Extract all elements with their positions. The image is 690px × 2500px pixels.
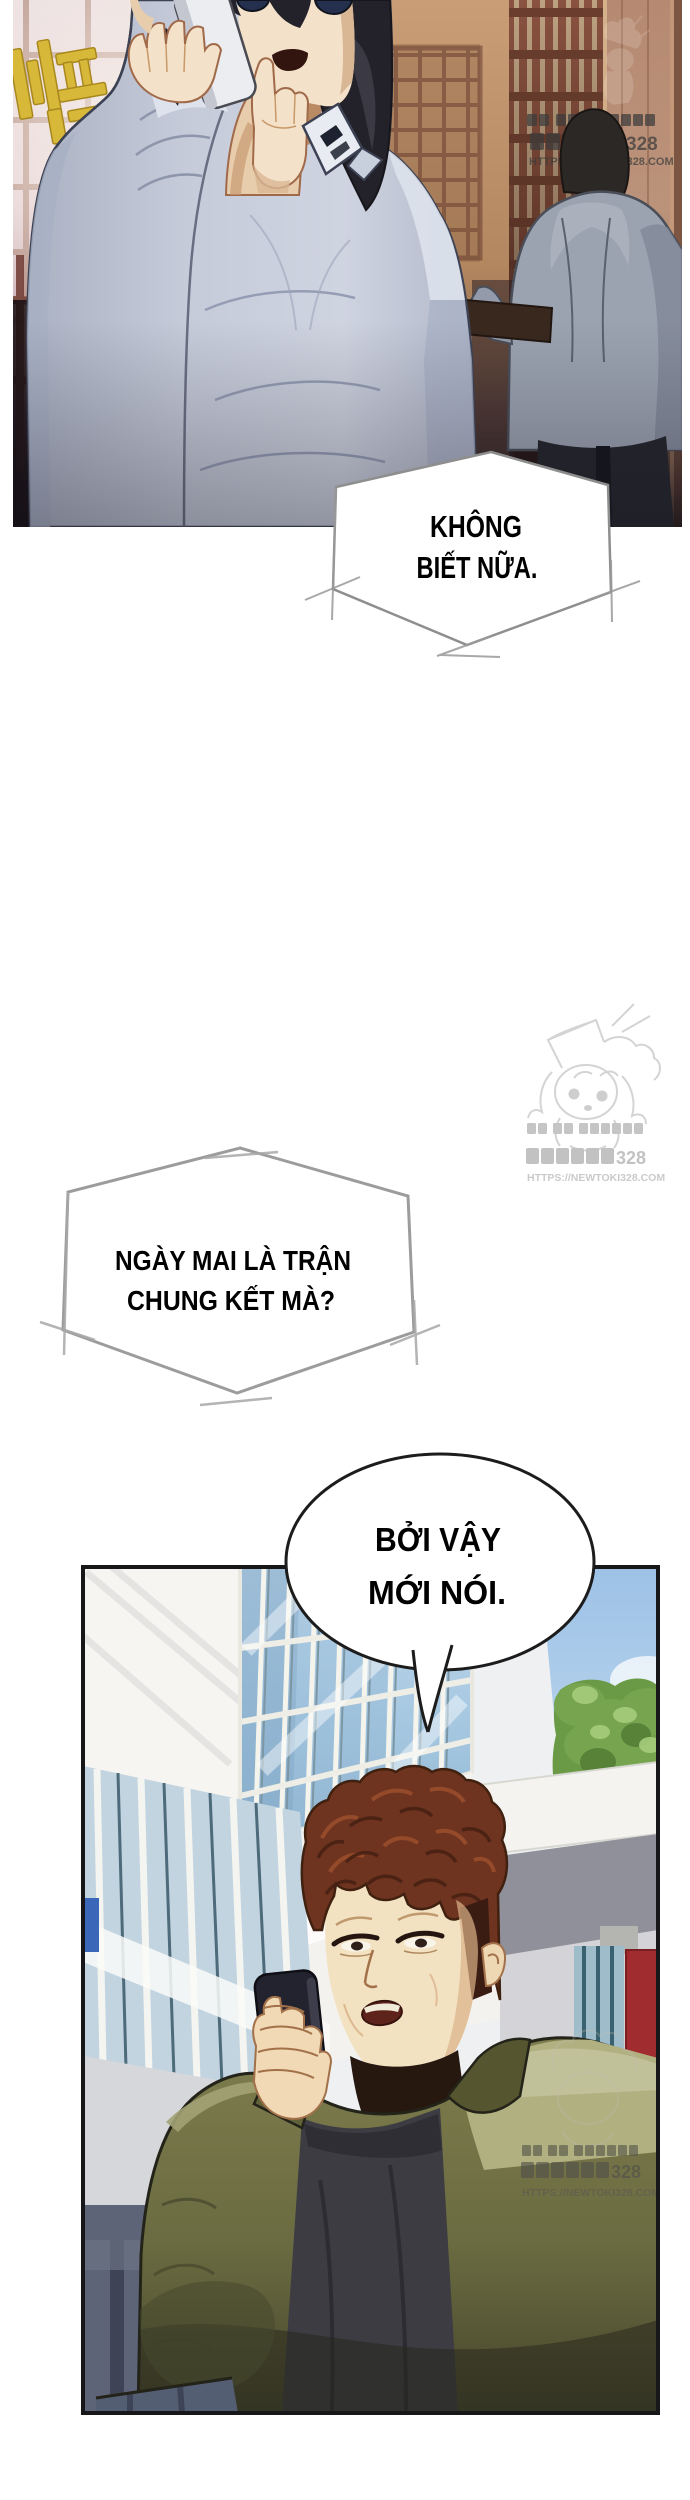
svg-text:328: 328 xyxy=(611,2162,641,2182)
svg-text:BIẾT NỮA.: BIẾT NỮA. xyxy=(417,549,538,585)
svg-text:CHUNG KẾT MÀ?: CHUNG KẾT MÀ? xyxy=(127,1285,335,1316)
svg-text:HTTPS://NEWTOKI328.COM: HTTPS://NEWTOKI328.COM xyxy=(522,2187,660,2199)
svg-text:328: 328 xyxy=(616,1148,646,1168)
svg-text:HTTPS://NEWTOKI328.COM: HTTPS://NEWTOKI328.COM xyxy=(527,1172,665,1184)
svg-text:328: 328 xyxy=(626,134,658,155)
svg-text:KHÔNG: KHÔNG xyxy=(430,508,522,544)
svg-text:NGÀY MAI LÀ TRẬN: NGÀY MAI LÀ TRẬN xyxy=(115,1245,351,1276)
svg-text:MỚI NÓI.: MỚI NÓI. xyxy=(368,1574,506,1611)
svg-text:BỞI VẬY: BỞI VẬY xyxy=(375,1521,501,1558)
